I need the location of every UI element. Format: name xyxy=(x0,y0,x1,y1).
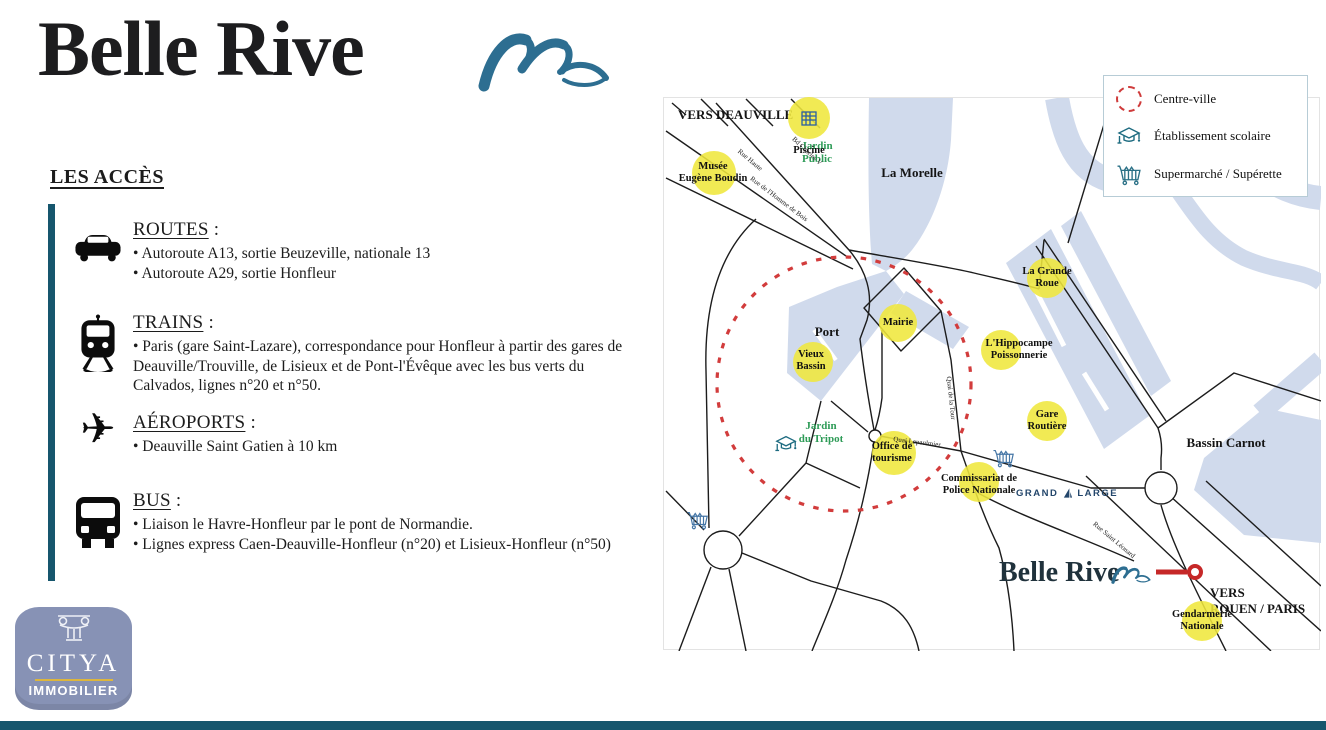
car-icon xyxy=(72,230,124,266)
access-section-bus: BUS : • Liaison le Havre-Honfleur par le… xyxy=(133,490,648,554)
section-bullet: • Lignes express Caen-Deauville-Honfleur… xyxy=(133,535,648,555)
citya-subtitle: IMMOBILIER xyxy=(15,683,132,698)
citya-divider xyxy=(35,679,113,681)
brand-wave-icon xyxy=(474,22,614,102)
brochure-page: Belle Rive LES ACCÈS ROUTES : • Autorout… xyxy=(0,0,1326,730)
train-icon xyxy=(72,314,124,372)
footer-bar xyxy=(0,721,1326,730)
citya-column-icon xyxy=(54,612,94,644)
access-section-trains: TRAINS : • Paris (gare Saint-Lazare), co… xyxy=(133,312,648,396)
section-bullet: • Autoroute A29, sortie Honfleur xyxy=(133,264,648,284)
dotted-circle-icon xyxy=(1114,86,1144,112)
cart-icon xyxy=(1114,161,1144,186)
legend-row-supermarche: Supermarché / Supérette xyxy=(1104,161,1307,186)
poi-label: Commissariat de Police Nationale xyxy=(941,473,1017,497)
section-bullet: • Paris (gare Saint-Lazare), corresponda… xyxy=(133,337,648,396)
access-heading: LES ACCÈS xyxy=(50,166,164,189)
access-section-airports: AÉROPORTS : • Deauville Saint Gatien à 1… xyxy=(133,412,648,457)
legend-label: Supermarché / Supérette xyxy=(1154,166,1282,182)
section-title: ROUTES : xyxy=(133,219,648,241)
legend-row-ecole: Établissement scolaire xyxy=(1104,123,1307,149)
grand-large-word1: GRAND xyxy=(1016,488,1058,499)
park-label-jardin-du-tripot: Jardin du Tripot xyxy=(799,420,844,446)
poi-label: Musée Eugène Boudin xyxy=(679,161,748,185)
legend-row-centre-ville: Centre-ville xyxy=(1104,86,1307,112)
grand-large-word2: LARGE xyxy=(1077,488,1118,499)
legend-label: Centre-ville xyxy=(1154,91,1216,107)
legend-label: Établissement scolaire xyxy=(1154,128,1271,144)
section-title: TRAINS : xyxy=(133,312,648,334)
citya-name: CITYA xyxy=(15,651,132,676)
citya-logo-badge: CITYA IMMOBILIER xyxy=(15,607,132,710)
accent-vertical-bar xyxy=(48,204,55,581)
section-title: BUS : xyxy=(133,490,648,512)
poi-label: Gare Routière xyxy=(1028,409,1067,433)
map-wave-icon xyxy=(1110,562,1152,588)
cart-icon xyxy=(687,507,709,531)
poi-label: Vieux Bassin xyxy=(796,349,825,373)
access-section-routes: ROUTES : • Autoroute A13, sortie Beuzevi… xyxy=(133,219,648,283)
property-marker-label: Belle Rive xyxy=(999,557,1120,589)
poi-label: Mairie xyxy=(883,317,913,329)
building-icon xyxy=(798,107,820,129)
water-label-bassin-carnot: Bassin Carnot xyxy=(1186,435,1265,451)
sail-icon xyxy=(1062,487,1073,499)
direction-label-deauville: VERS DEAUVILLE xyxy=(678,107,793,123)
school-icon xyxy=(774,432,798,456)
water-label-la-morelle: La Morelle xyxy=(881,165,943,181)
cart-icon xyxy=(993,445,1015,469)
legend-box: Centre-ville Établissement scolaire xyxy=(1103,75,1308,197)
brand-logo-text: Belle Rive xyxy=(38,10,364,88)
section-bullet: • Autoroute A13, sortie Beuzeville, nati… xyxy=(133,244,648,264)
property-marker xyxy=(1156,566,1201,578)
water-label-port: Port xyxy=(815,324,840,340)
section-bullet: • Deauville Saint Gatien à 10 km xyxy=(133,437,648,457)
bus-icon xyxy=(72,494,124,552)
poi-label: La Grande Roue xyxy=(1022,266,1071,290)
poi-circle-piscine xyxy=(788,97,830,139)
section-bullet: • Liaison le Havre-Honfleur par le pont … xyxy=(133,515,648,535)
poi-label: Gendarmerie Nationale xyxy=(1172,609,1232,633)
poi-label: L'Hippocampe Poissonnerie xyxy=(985,338,1052,362)
grand-large-logo: GRAND LARGE xyxy=(1016,487,1118,499)
school-icon xyxy=(1114,123,1144,149)
plane-icon: ✈ xyxy=(72,408,124,450)
section-title: AÉROPORTS : xyxy=(133,412,648,434)
